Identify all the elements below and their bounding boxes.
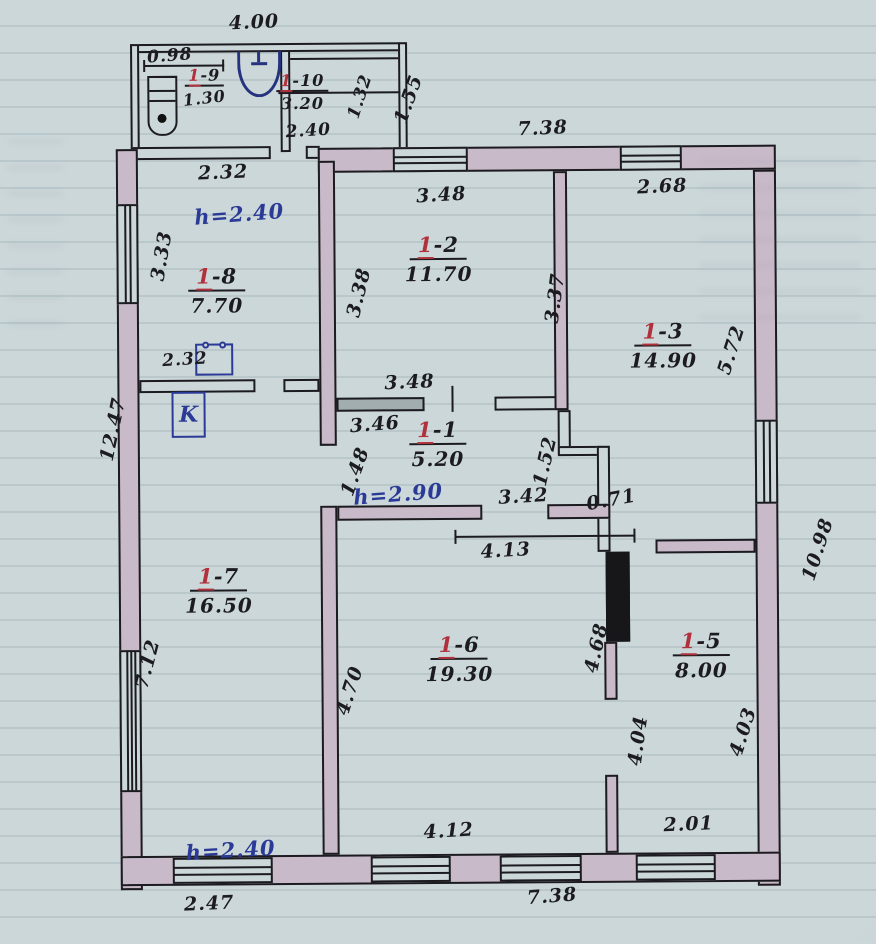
dim-room2-bottom: 3.48 [384, 370, 435, 394]
wall-room6-room5-b [605, 775, 619, 853]
room-label-1-3: 1-3 14.90 [629, 318, 697, 372]
niche-line-1 [290, 57, 398, 60]
wall-left-column-lower [320, 506, 339, 855]
dim-room6-top: 4.13 [480, 538, 531, 563]
window-bottom-4 [636, 854, 716, 881]
wall-room2-corridor-shaded [336, 397, 424, 412]
wall-outer-top [318, 145, 776, 173]
room-label-1-7: 1-7 16.50 [185, 563, 253, 617]
dim-room3-top: 2.68 [637, 174, 688, 198]
dim-annex-width-top: 4.00 [228, 10, 279, 34]
dim-room2-top: 3.48 [415, 182, 466, 207]
dim-room8-left: 3.33 [147, 229, 177, 282]
room-label-1-5: 1-5 8.00 [673, 628, 730, 682]
wall-outer-right [753, 170, 781, 886]
dim-tick-room2-bottom [451, 386, 453, 412]
dim-room5-right: 4.03 [725, 705, 761, 760]
window-top-1 [393, 147, 468, 173]
wall-annex-left [130, 44, 140, 154]
dim-bottom-main-width: 7.38 [526, 883, 578, 909]
ceiling-height-room-1-8: h=2.40 [193, 198, 285, 230]
dim-right-side-total: 10.98 [798, 515, 838, 583]
dim-room8-width-top: 2.32 [197, 160, 248, 184]
dim-annex-depth: 1.55 [390, 72, 428, 127]
room-label-1-8: 1-8 7.70 [188, 263, 245, 317]
dimline-413-tick-r [633, 529, 635, 543]
window-bottom-2 [371, 856, 451, 883]
dim-room1-top: 3.46 [349, 412, 401, 438]
wall-room3-room5 [655, 539, 755, 554]
dim-main-top-width: 7.38 [517, 116, 568, 140]
dim-stove-width: 2.32 [162, 348, 209, 371]
room-label-1-2: 1-2 11.70 [405, 232, 473, 286]
dim-bottom-left-width: 2.47 [184, 892, 235, 916]
dim-room1-right: 1.52 [529, 434, 561, 488]
wall-room8-room7-b [283, 379, 319, 392]
drawing-layer: K 1-9 1.30 1-10 3.20 1-8 7.70 1-2 11.70 … [0, 0, 876, 944]
wall-annex-bottom-a [131, 146, 271, 160]
room-label-1-6: 1-6 19.30 [425, 632, 493, 686]
window-bottom-3 [500, 855, 582, 882]
dim-room10-width: 2.40 [285, 120, 332, 143]
wall-room2-corridor-b [494, 396, 559, 410]
boiler-label: K [179, 402, 198, 428]
room-label-1-1: 1-1 5.20 [409, 417, 466, 471]
dim-room5-bottom: 2.01 [663, 812, 714, 836]
dimline-413-tick-l [454, 530, 456, 544]
dim-room10-depth: 1.32 [344, 72, 377, 121]
dim-room1-bottom: 3.42 [498, 484, 549, 509]
wall-left-column-upper [318, 161, 337, 446]
dim-corridor-ext: 0.71 [585, 484, 638, 515]
dim-room9-width: 0.98 [146, 44, 193, 67]
window-left-1 [116, 204, 139, 304]
dim-room2-left: 3.38 [342, 266, 375, 320]
dim-room6-bottom: 4.12 [423, 818, 474, 843]
ceiling-height-room-1-7: h=2.40 [185, 835, 276, 865]
dim-room3-right: 5.72 [713, 323, 749, 378]
room-label-1-10: 1-10 3.20 [276, 71, 328, 113]
dimline-098-tick-l [143, 60, 145, 72]
sink-icon [237, 51, 281, 97]
room-label-1-9: 1-9 1.30 [183, 65, 226, 107]
toilet-icon [147, 76, 177, 136]
window-top-2 [620, 145, 682, 170]
boiler-icon: K [171, 392, 205, 438]
floor-plan: K 1-9 1.30 1-10 3.20 1-8 7.70 1-2 11.70 … [0, 0, 876, 941]
window-right-1 [755, 420, 779, 504]
dim-room5-left: 4.04 [624, 714, 652, 767]
wall-corridor-ext-top [558, 446, 602, 456]
